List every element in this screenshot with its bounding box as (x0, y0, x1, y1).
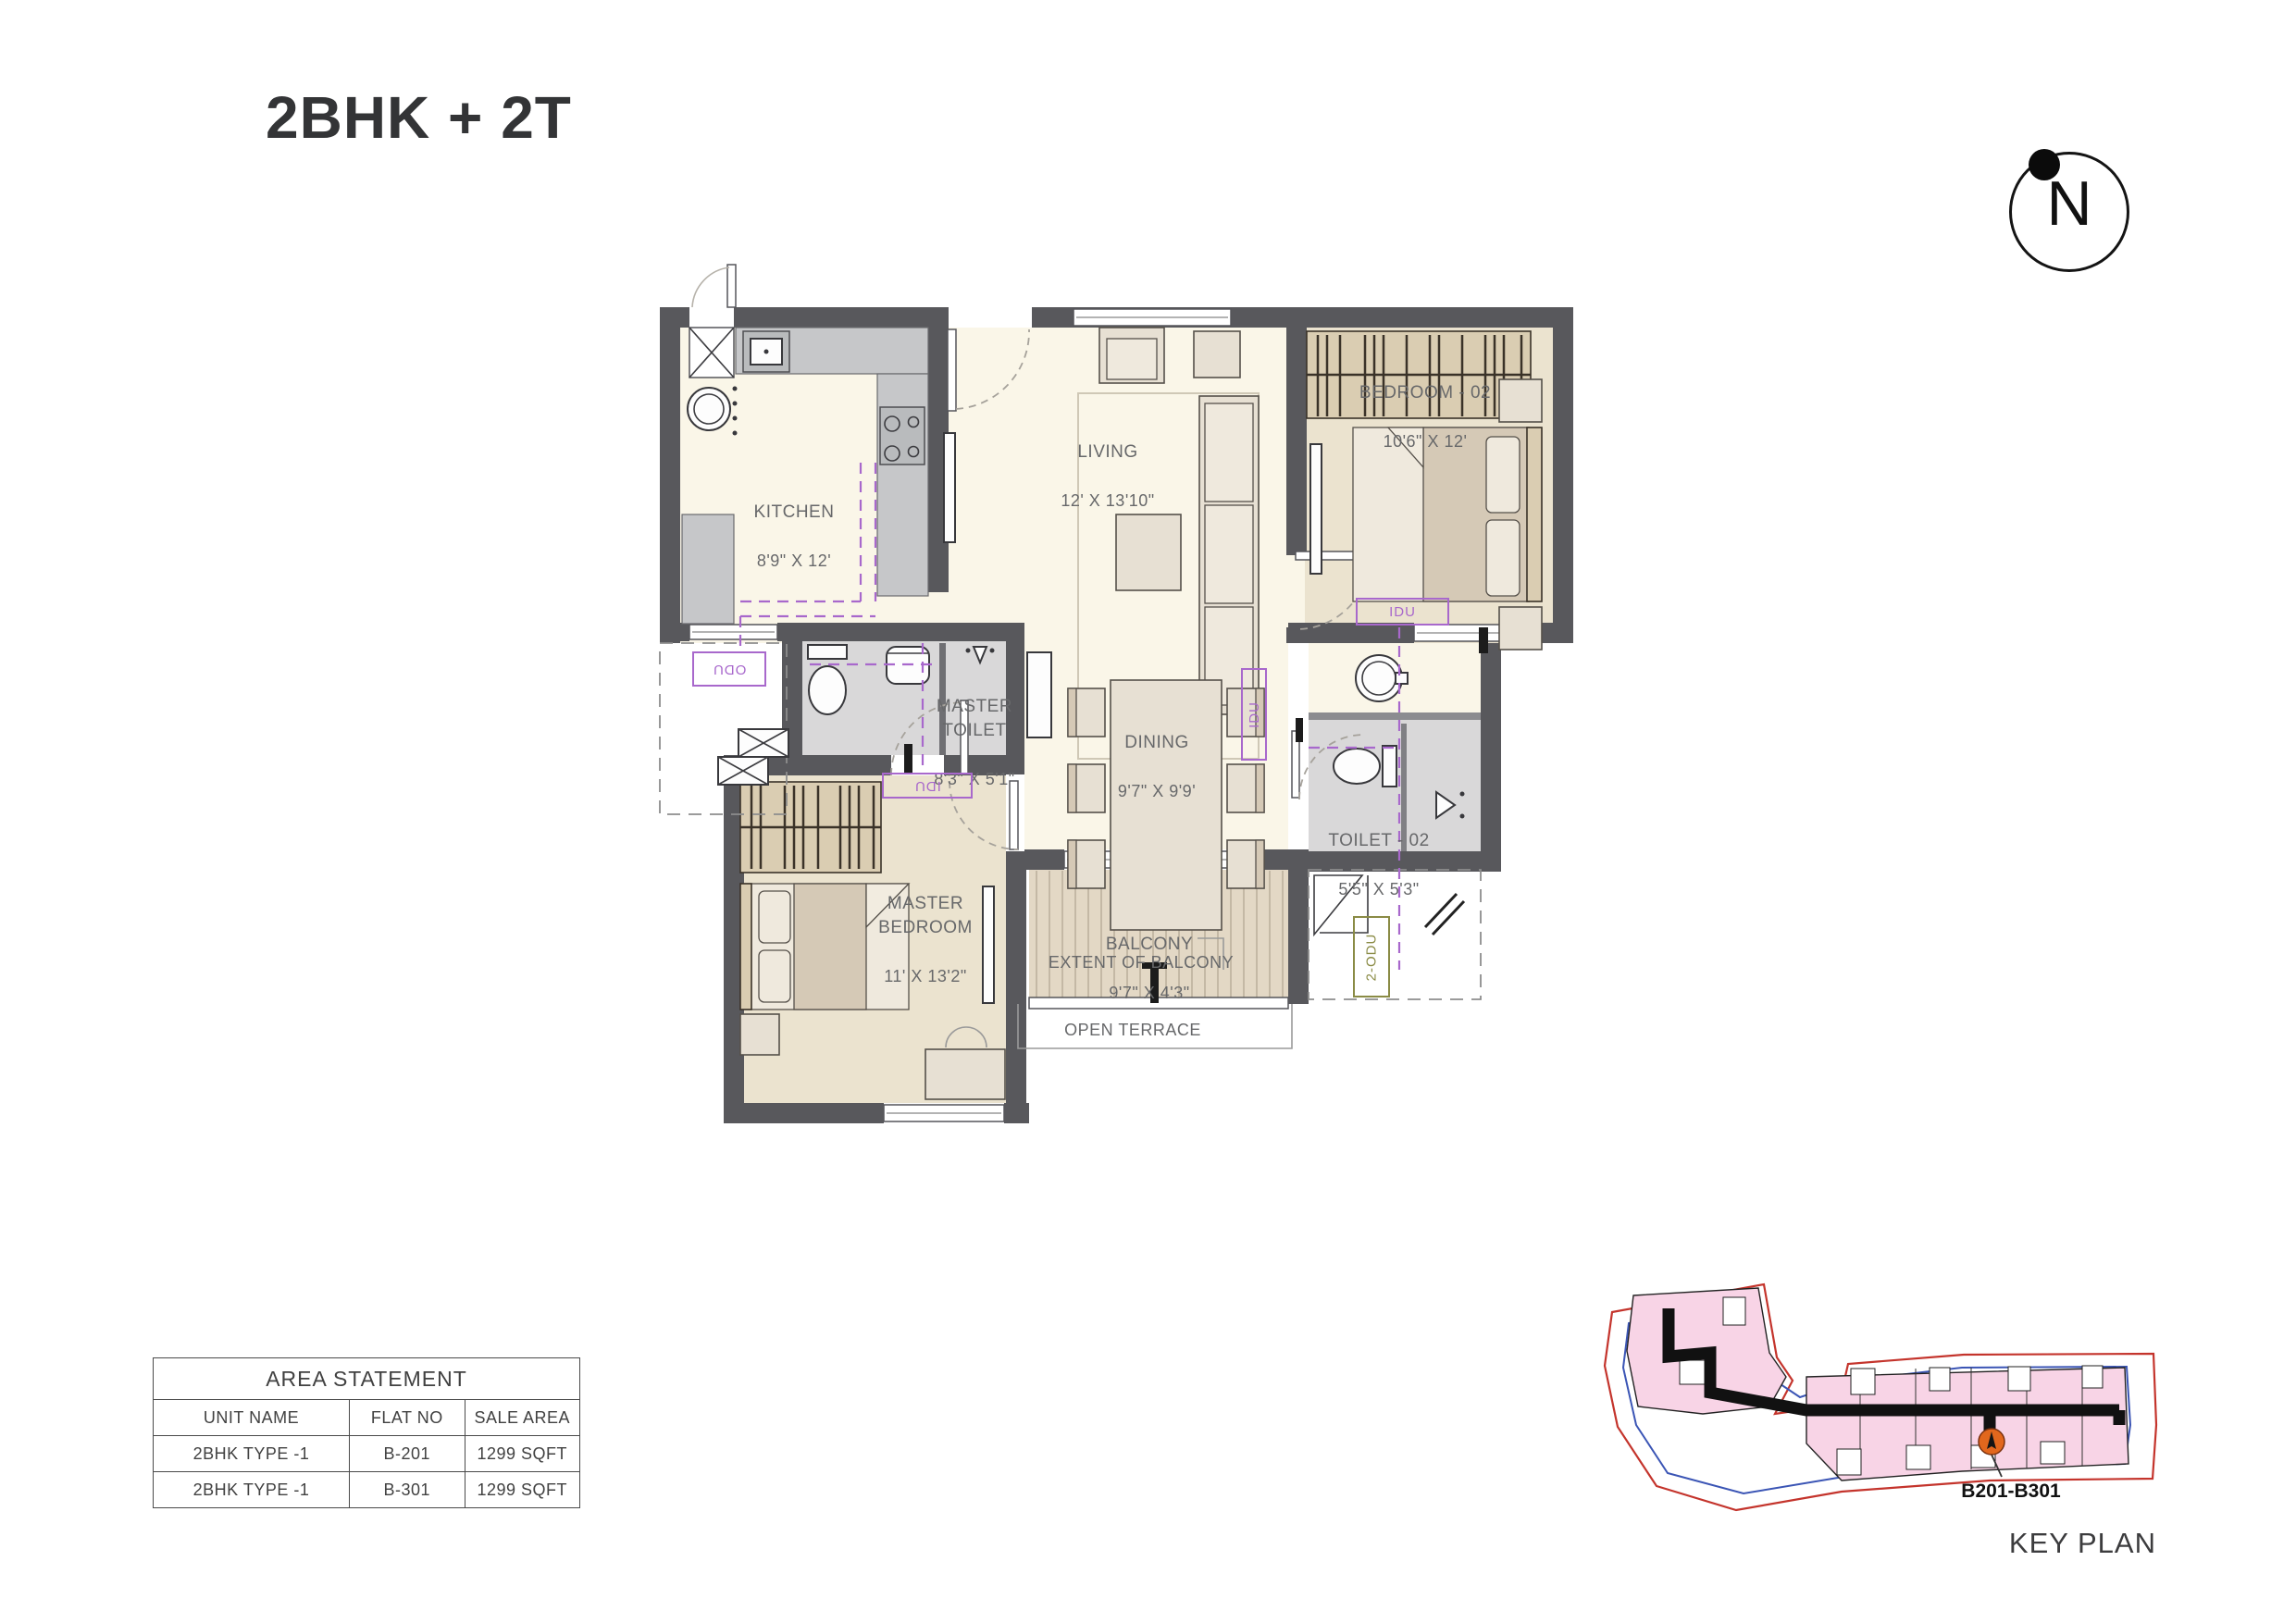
idu-tag-master-toilet: IDU (882, 773, 973, 799)
room-label-dining: DINING 9'7" X 9'9' (1092, 707, 1222, 827)
sheet: 2BHK + 2T N (0, 0, 2296, 1623)
room-label-living: LIVING 12' X 13'10" (1029, 416, 1186, 537)
keyplan-marker-label: B201-B301 (1961, 1481, 2061, 1502)
two-odu-tag: 2-ODU (1353, 916, 1390, 997)
idu-tag-bedroom2: IDU (1356, 598, 1449, 626)
key-plan: B201-B301 KEY PLAN (1605, 1284, 2156, 1559)
area-table-title: AREA STATEMENT (154, 1358, 580, 1400)
col-header-sale-area: SALE AREA (465, 1400, 579, 1436)
col-header-unit-name: UNIT NAME (154, 1400, 350, 1436)
table-row: 2BHK TYPE -1 B-201 1299 SQFT (154, 1436, 580, 1472)
idu-tag-dining: IDU (1241, 668, 1267, 761)
col-header-flat-no: FLAT NO (350, 1400, 465, 1436)
room-label-master-bedroom: MASTER BEDROOM 11' X 13'2" (865, 868, 986, 1012)
room-label-bedroom-02: BEDROOM - 02 10'6" X 12' (1337, 357, 1513, 477)
keyplan-title: KEY PLAN (2009, 1527, 2156, 1559)
odu-tag: ODU (692, 651, 766, 687)
open-terrace-label: OPEN TERRACE (1064, 1021, 1201, 1040)
extent-of-balcony-label: EXTENT OF BALCONY (1049, 953, 1234, 973)
table-row: 2BHK TYPE -1 B-301 1299 SQFT (154, 1472, 580, 1508)
room-label-toilet-02: TOILET - 02 5'5" X 5'3" (1314, 805, 1444, 925)
area-statement-table: AREA STATEMENT UNIT NAME FLAT NO SALE AR… (153, 1357, 580, 1508)
room-label-kitchen: KITCHEN 8'9" X 12' (725, 477, 863, 597)
